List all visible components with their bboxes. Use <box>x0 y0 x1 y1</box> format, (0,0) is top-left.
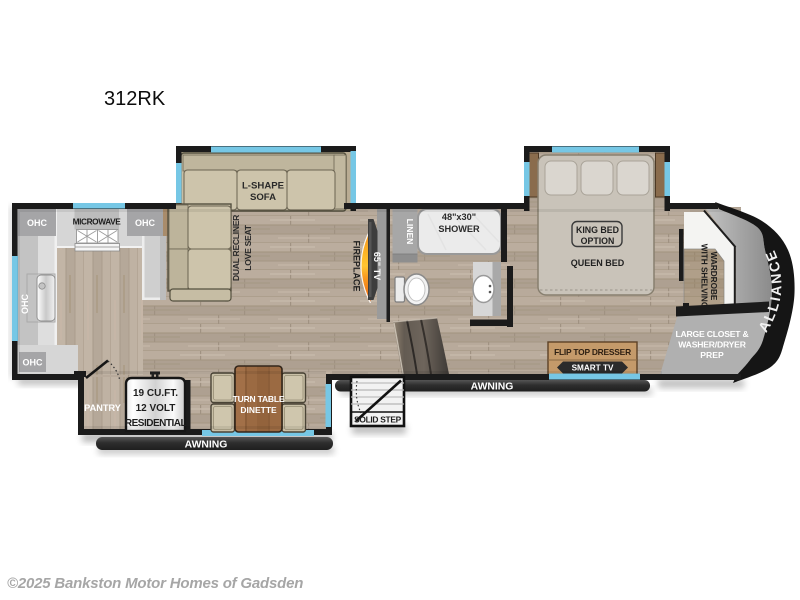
svg-text:48"x30": 48"x30" <box>442 212 476 222</box>
svg-text:SOLID STEP: SOLID STEP <box>354 415 402 425</box>
svg-text:OHC: OHC <box>23 358 44 368</box>
svg-text:AWNING: AWNING <box>185 440 228 451</box>
svg-text:OHC: OHC <box>20 294 30 315</box>
svg-text:DINETTE: DINETTE <box>240 405 277 415</box>
svg-text:PANTRY: PANTRY <box>84 403 121 413</box>
svg-text:DUAL RECLINER: DUAL RECLINER <box>231 214 241 281</box>
svg-text:OPTION: OPTION <box>581 236 615 246</box>
svg-text:LINEN: LINEN <box>405 219 415 245</box>
svg-text:65" TV: 65" TV <box>372 252 382 280</box>
svg-text:19 CU.FT.: 19 CU.FT. <box>133 388 178 399</box>
svg-text:WITH SHELVING: WITH SHELVING <box>700 244 709 308</box>
svg-text:KING BED: KING BED <box>576 225 619 235</box>
svg-text:LARGE CLOSET &: LARGE CLOSET & <box>675 329 748 339</box>
svg-text:FLIP TOP DRESSER: FLIP TOP DRESSER <box>554 347 631 357</box>
svg-text:SOFA: SOFA <box>250 192 276 203</box>
svg-text:LOVE SEAT: LOVE SEAT <box>243 224 253 270</box>
svg-text:TURN TABLE: TURN TABLE <box>233 394 285 404</box>
svg-text:OHC: OHC <box>135 218 156 228</box>
svg-text:©2025 Bankston Motor Homes of: ©2025 Bankston Motor Homes of Gadsden <box>7 575 303 592</box>
svg-text:AWNING: AWNING <box>471 382 514 393</box>
svg-text:OHC: OHC <box>27 218 48 228</box>
svg-text:WASHER/DRYER: WASHER/DRYER <box>678 340 746 350</box>
svg-text:L-SHAPE: L-SHAPE <box>242 181 285 192</box>
svg-text:FIREPLACE: FIREPLACE <box>352 240 362 291</box>
svg-text:PREP: PREP <box>700 350 724 360</box>
svg-text:312RK: 312RK <box>104 88 166 110</box>
svg-text:MICROWAVE: MICROWAVE <box>73 217 122 227</box>
svg-text:WARDROBE: WARDROBE <box>709 252 718 301</box>
svg-text:QUEEN BED: QUEEN BED <box>571 258 625 268</box>
svg-text:12 VOLT: 12 VOLT <box>136 403 176 414</box>
svg-text:SHOWER: SHOWER <box>438 224 480 234</box>
